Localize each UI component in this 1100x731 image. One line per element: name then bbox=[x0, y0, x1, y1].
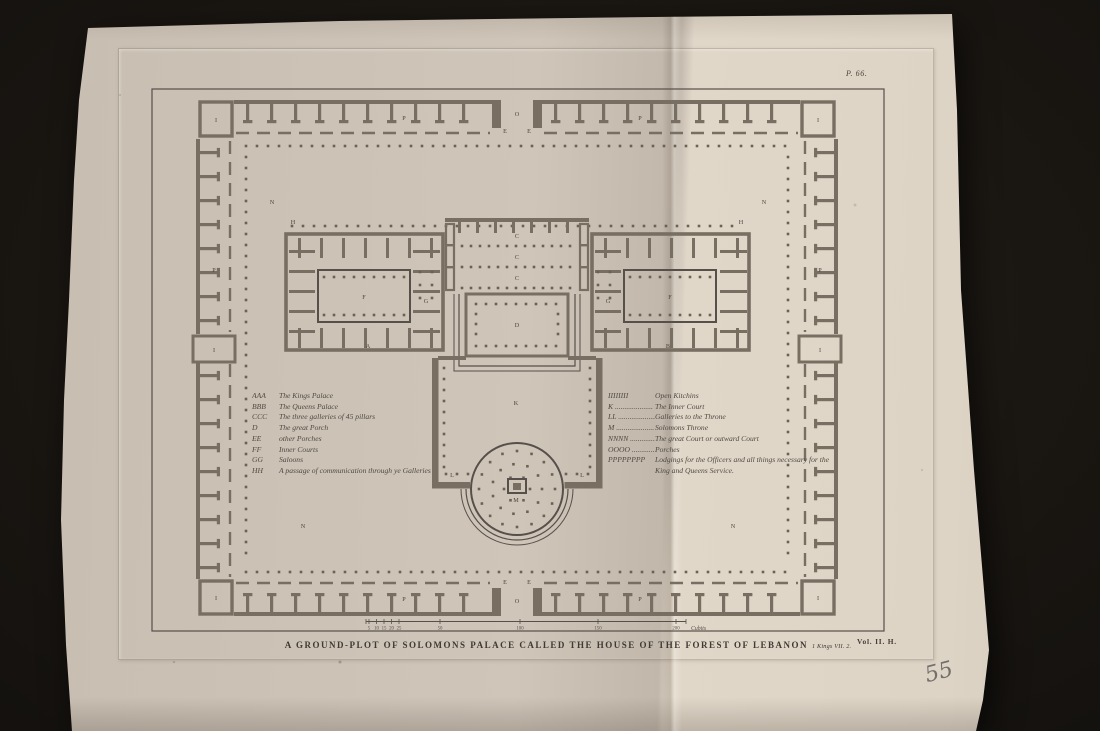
legend-key: CCC bbox=[252, 412, 279, 423]
plan-walls bbox=[152, 89, 884, 631]
plan-letter: I bbox=[215, 117, 217, 124]
legend-key: EE bbox=[252, 434, 279, 445]
paper-shadow: 51015202550100150200Cubits OOEEEENNNNPPP… bbox=[0, 0, 1100, 731]
plan-letter: D bbox=[515, 322, 520, 329]
legend-row: DThe great Porch bbox=[252, 423, 431, 434]
plan-letter: E bbox=[503, 128, 507, 135]
legend-text: Galleries to the Throne bbox=[655, 412, 837, 423]
plan-letter: G bbox=[424, 298, 429, 305]
plan-letter: H bbox=[291, 219, 296, 226]
legend-row: NNNN ....................The great Court… bbox=[608, 434, 837, 445]
legend-row: AAAThe Kings Palace bbox=[252, 391, 431, 402]
plan-letter: E bbox=[503, 579, 507, 586]
legend-row: M ....................Solomons Throne bbox=[608, 423, 837, 434]
legend-key: PPPPPPPP bbox=[608, 455, 655, 476]
plan-letter: N bbox=[301, 523, 306, 530]
plan-letter: E bbox=[527, 579, 531, 586]
plan-letter: I bbox=[817, 117, 819, 124]
scale-bar: 51015202550100150200Cubits bbox=[366, 619, 707, 632]
svg-text:100: 100 bbox=[516, 627, 524, 632]
legend-text: The Kings Palace bbox=[279, 391, 333, 402]
legend-key: D bbox=[252, 423, 279, 434]
plan-letter: P bbox=[402, 596, 406, 603]
plan-letter: O bbox=[515, 598, 520, 605]
ground-plan-engraving: 51015202550100150200Cubits OOEEEENNNNPPP… bbox=[0, 0, 1100, 731]
legend-row: OOOO ....................Porches bbox=[608, 445, 837, 456]
plan-letter: M bbox=[513, 497, 519, 504]
legend-key: BBB bbox=[252, 402, 279, 413]
legend-text: Inner Courts bbox=[279, 445, 318, 456]
plan-letter: B bbox=[666, 343, 670, 350]
legend-key: M .................... bbox=[608, 423, 655, 434]
legend-key: OOOO .................... bbox=[608, 445, 655, 456]
legend-text: A passage of communication through ye Ga… bbox=[279, 466, 431, 477]
legend-key: LL .................... bbox=[608, 412, 655, 423]
legend-row: EEother Porches bbox=[252, 434, 431, 445]
legend-key: NNNN .................... bbox=[608, 434, 655, 445]
legend-row: GGSaloons bbox=[252, 455, 431, 466]
plan-letter: F bbox=[362, 294, 366, 301]
legend-text: other Porches bbox=[279, 434, 322, 445]
plan-letter: P bbox=[638, 596, 642, 603]
svg-text:10: 10 bbox=[374, 627, 379, 632]
legend-key: HH bbox=[252, 466, 279, 477]
plan-letter: N bbox=[762, 199, 767, 206]
title-reference: 1 Kings VII. 2. bbox=[812, 643, 851, 650]
svg-text:25: 25 bbox=[397, 627, 402, 632]
photo-background: 51015202550100150200Cubits OOEEEENNNNPPP… bbox=[0, 0, 1100, 731]
legend-key: K .................... bbox=[608, 402, 655, 413]
plan-letter: P bbox=[818, 267, 822, 274]
plan-letter: E bbox=[527, 128, 531, 135]
plan-letter: I bbox=[817, 595, 819, 602]
legend-text: Open Kitchins bbox=[655, 391, 837, 402]
legend-key: GG bbox=[252, 455, 279, 466]
plan-letter: F bbox=[668, 294, 672, 301]
title-text: A GROUND-PLOT OF SOLOMONS PALACE CALLED … bbox=[285, 640, 808, 650]
plan-letter: I bbox=[215, 595, 217, 602]
plan-letter: P bbox=[402, 115, 406, 122]
legend-row: CCCThe three galleries of 45 pillars bbox=[252, 412, 431, 423]
legend-text: The Inner Court bbox=[655, 402, 837, 413]
legend-row: LL ....................Galleries to the … bbox=[608, 412, 837, 423]
plan-letter: P bbox=[212, 267, 216, 274]
plan-letter: P bbox=[638, 115, 642, 122]
plan-letter: L bbox=[450, 472, 454, 479]
plan-letter: O bbox=[515, 111, 520, 118]
plan-letter: A bbox=[366, 343, 371, 350]
legend-text: The three galleries of 45 pillars bbox=[279, 412, 375, 423]
legend-text: Solomons Throne bbox=[655, 423, 837, 434]
legend-row: BBBThe Queens Palace bbox=[252, 402, 431, 413]
plan-letter: C bbox=[515, 233, 519, 240]
legend-text: Saloons bbox=[279, 455, 303, 466]
legend-row: HHA passage of communication through ye … bbox=[252, 466, 431, 477]
plan-letter: I bbox=[819, 347, 821, 354]
plan-letter: N bbox=[731, 523, 736, 530]
legend-text: The Queens Palace bbox=[279, 402, 338, 413]
plan-letter: I bbox=[213, 347, 215, 354]
legend-row: FFInner Courts bbox=[252, 445, 431, 456]
svg-text:15: 15 bbox=[382, 627, 387, 632]
legend-row: IIIIIIIIOpen Kitchins bbox=[608, 391, 837, 402]
plan-letter: L bbox=[580, 472, 584, 479]
legend-row: PPPPPPPPLodgings for the Officers and al… bbox=[608, 455, 837, 476]
plan-letter: K bbox=[514, 400, 519, 407]
legend-text: Porches bbox=[655, 445, 837, 456]
legend-right: IIIIIIIIOpen KitchinsK .................… bbox=[608, 391, 837, 477]
svg-text:150: 150 bbox=[594, 627, 602, 632]
plan-letter: G bbox=[606, 298, 611, 305]
plan-letter: N bbox=[270, 199, 275, 206]
svg-text:Cubits: Cubits bbox=[691, 626, 707, 632]
legend-text: The great Court or outward Court bbox=[655, 434, 837, 445]
svg-text:50: 50 bbox=[438, 627, 443, 632]
plan-letter: C bbox=[515, 275, 519, 282]
plan-letter: C bbox=[515, 254, 519, 261]
plan-letter-labels: OOEEEENNNNPPPPPPIIIIIIABCCCDFFGGHHKLLM bbox=[212, 111, 822, 605]
legend-key: AAA bbox=[252, 391, 279, 402]
legend-key: IIIIIIII bbox=[608, 391, 655, 402]
volume-mark: Vol. II. H. bbox=[857, 637, 897, 646]
legend-text: Lodgings for the Officers and all things… bbox=[655, 455, 837, 476]
legend-key: FF bbox=[252, 445, 279, 456]
svg-text:200: 200 bbox=[672, 627, 680, 632]
legend-text: The great Porch bbox=[279, 423, 328, 434]
legend-row: K ....................The Inner Court bbox=[608, 402, 837, 413]
plan-letter: H bbox=[739, 219, 744, 226]
paper-sheet: 51015202550100150200Cubits OOEEEENNNNPPP… bbox=[0, 0, 1100, 731]
svg-text:20: 20 bbox=[389, 627, 394, 632]
plate-number: P. 66. bbox=[846, 69, 867, 78]
legend-left: AAAThe Kings PalaceBBBThe Queens PalaceC… bbox=[252, 391, 431, 477]
